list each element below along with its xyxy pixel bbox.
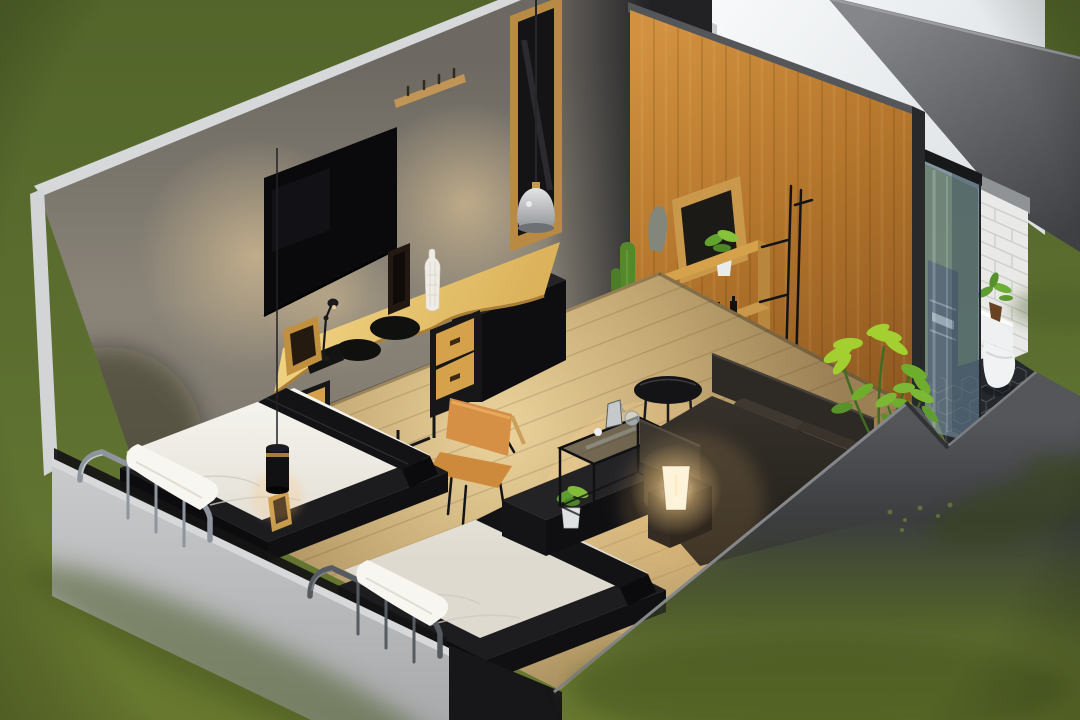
isometric-room-render [0,0,1080,720]
vignette [0,0,1080,720]
